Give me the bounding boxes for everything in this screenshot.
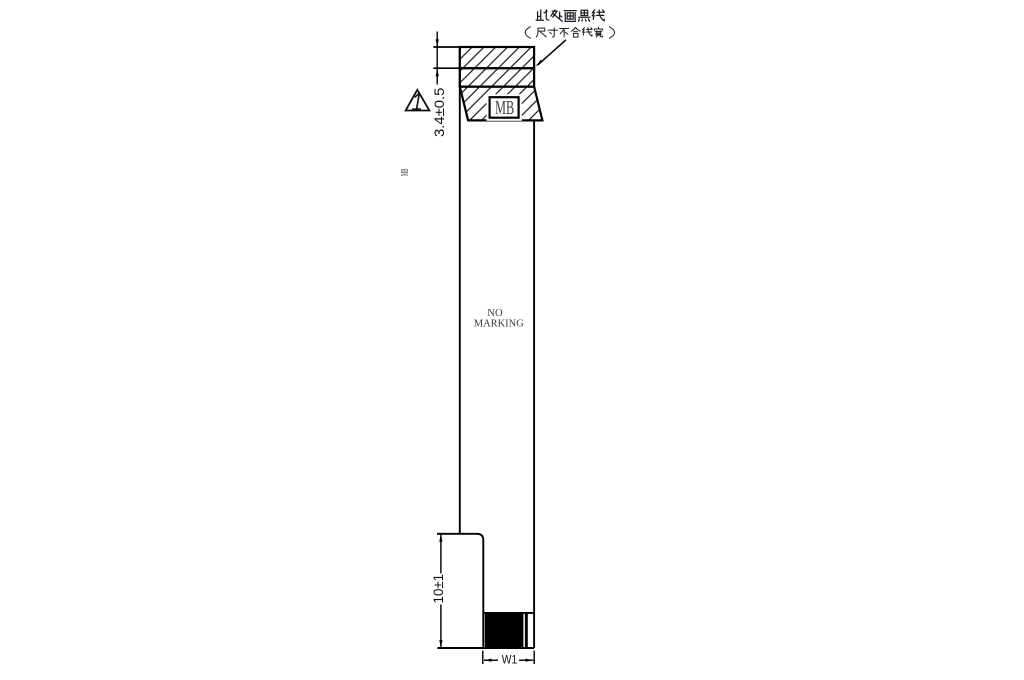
svg-text:MARKING: MARKING <box>474 317 524 329</box>
svg-text:MB: MB <box>495 97 514 119</box>
svg-text:3.4±0.5: 3.4±0.5 <box>432 87 448 137</box>
svg-text:MB: MB <box>400 168 411 176</box>
svg-text:10±1: 10±1 <box>431 574 446 604</box>
svg-text:W1: W1 <box>502 655 518 667</box>
